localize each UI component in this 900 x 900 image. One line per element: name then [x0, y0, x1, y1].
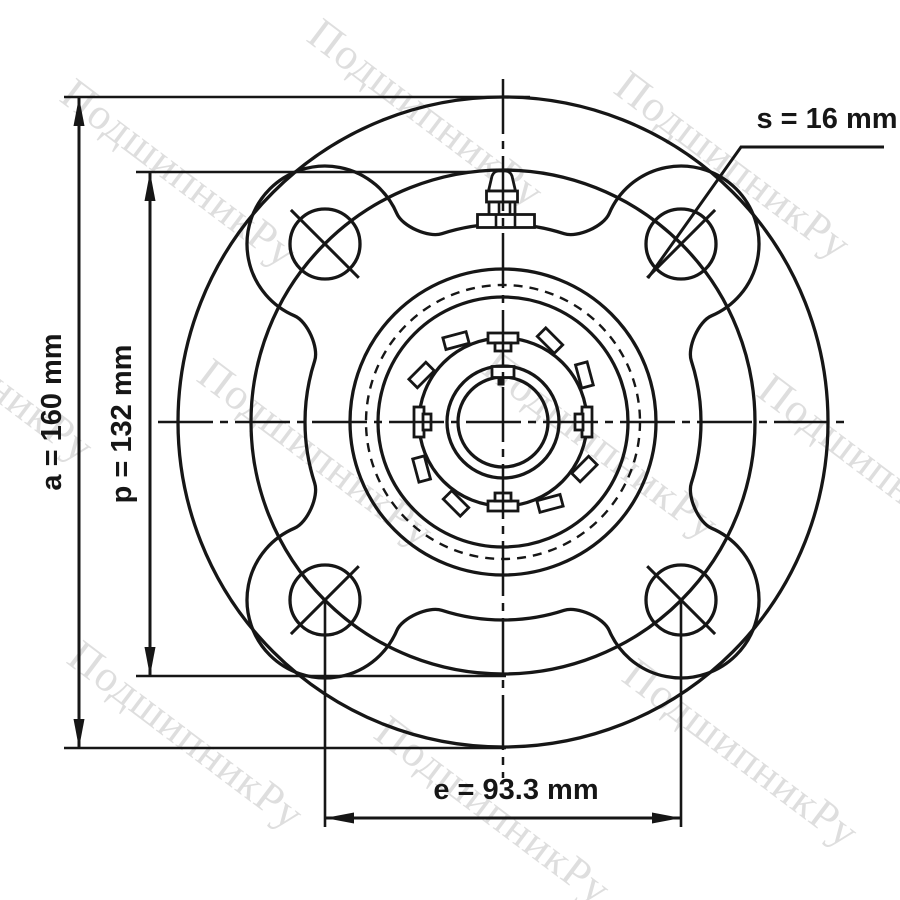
- dim-label-e: e = 93.3 mm: [433, 774, 598, 806]
- locknut-tab: [537, 328, 562, 353]
- locknut-tab: [409, 362, 434, 387]
- watermark-text: ПодшипникРу: [614, 649, 869, 858]
- arrowhead-e-right: [652, 813, 681, 824]
- dim-label-s: s = 16 mm: [756, 103, 897, 135]
- locknut-tab: [572, 456, 597, 481]
- dim-label-p: p = 132 mm: [106, 345, 138, 504]
- arrowhead-e-left: [325, 813, 354, 824]
- arrowhead-a-down: [74, 719, 85, 748]
- grease-fitting-base: [478, 215, 535, 228]
- drawing-svg: ПодшипникРу ПодшипникРу ПодшипникРу Подш…: [0, 0, 900, 900]
- watermark-text: ПодшипникРу: [606, 61, 861, 270]
- locknut-tab: [443, 491, 468, 516]
- watermark-text: ПодшипникРу: [189, 349, 444, 558]
- arrowhead-p-down: [145, 647, 156, 676]
- flange-bearing-drawing: ПодшипникРу ПодшипникРу ПодшипникРу Подш…: [0, 0, 900, 900]
- dim-label-a: a = 160 mm: [36, 333, 68, 490]
